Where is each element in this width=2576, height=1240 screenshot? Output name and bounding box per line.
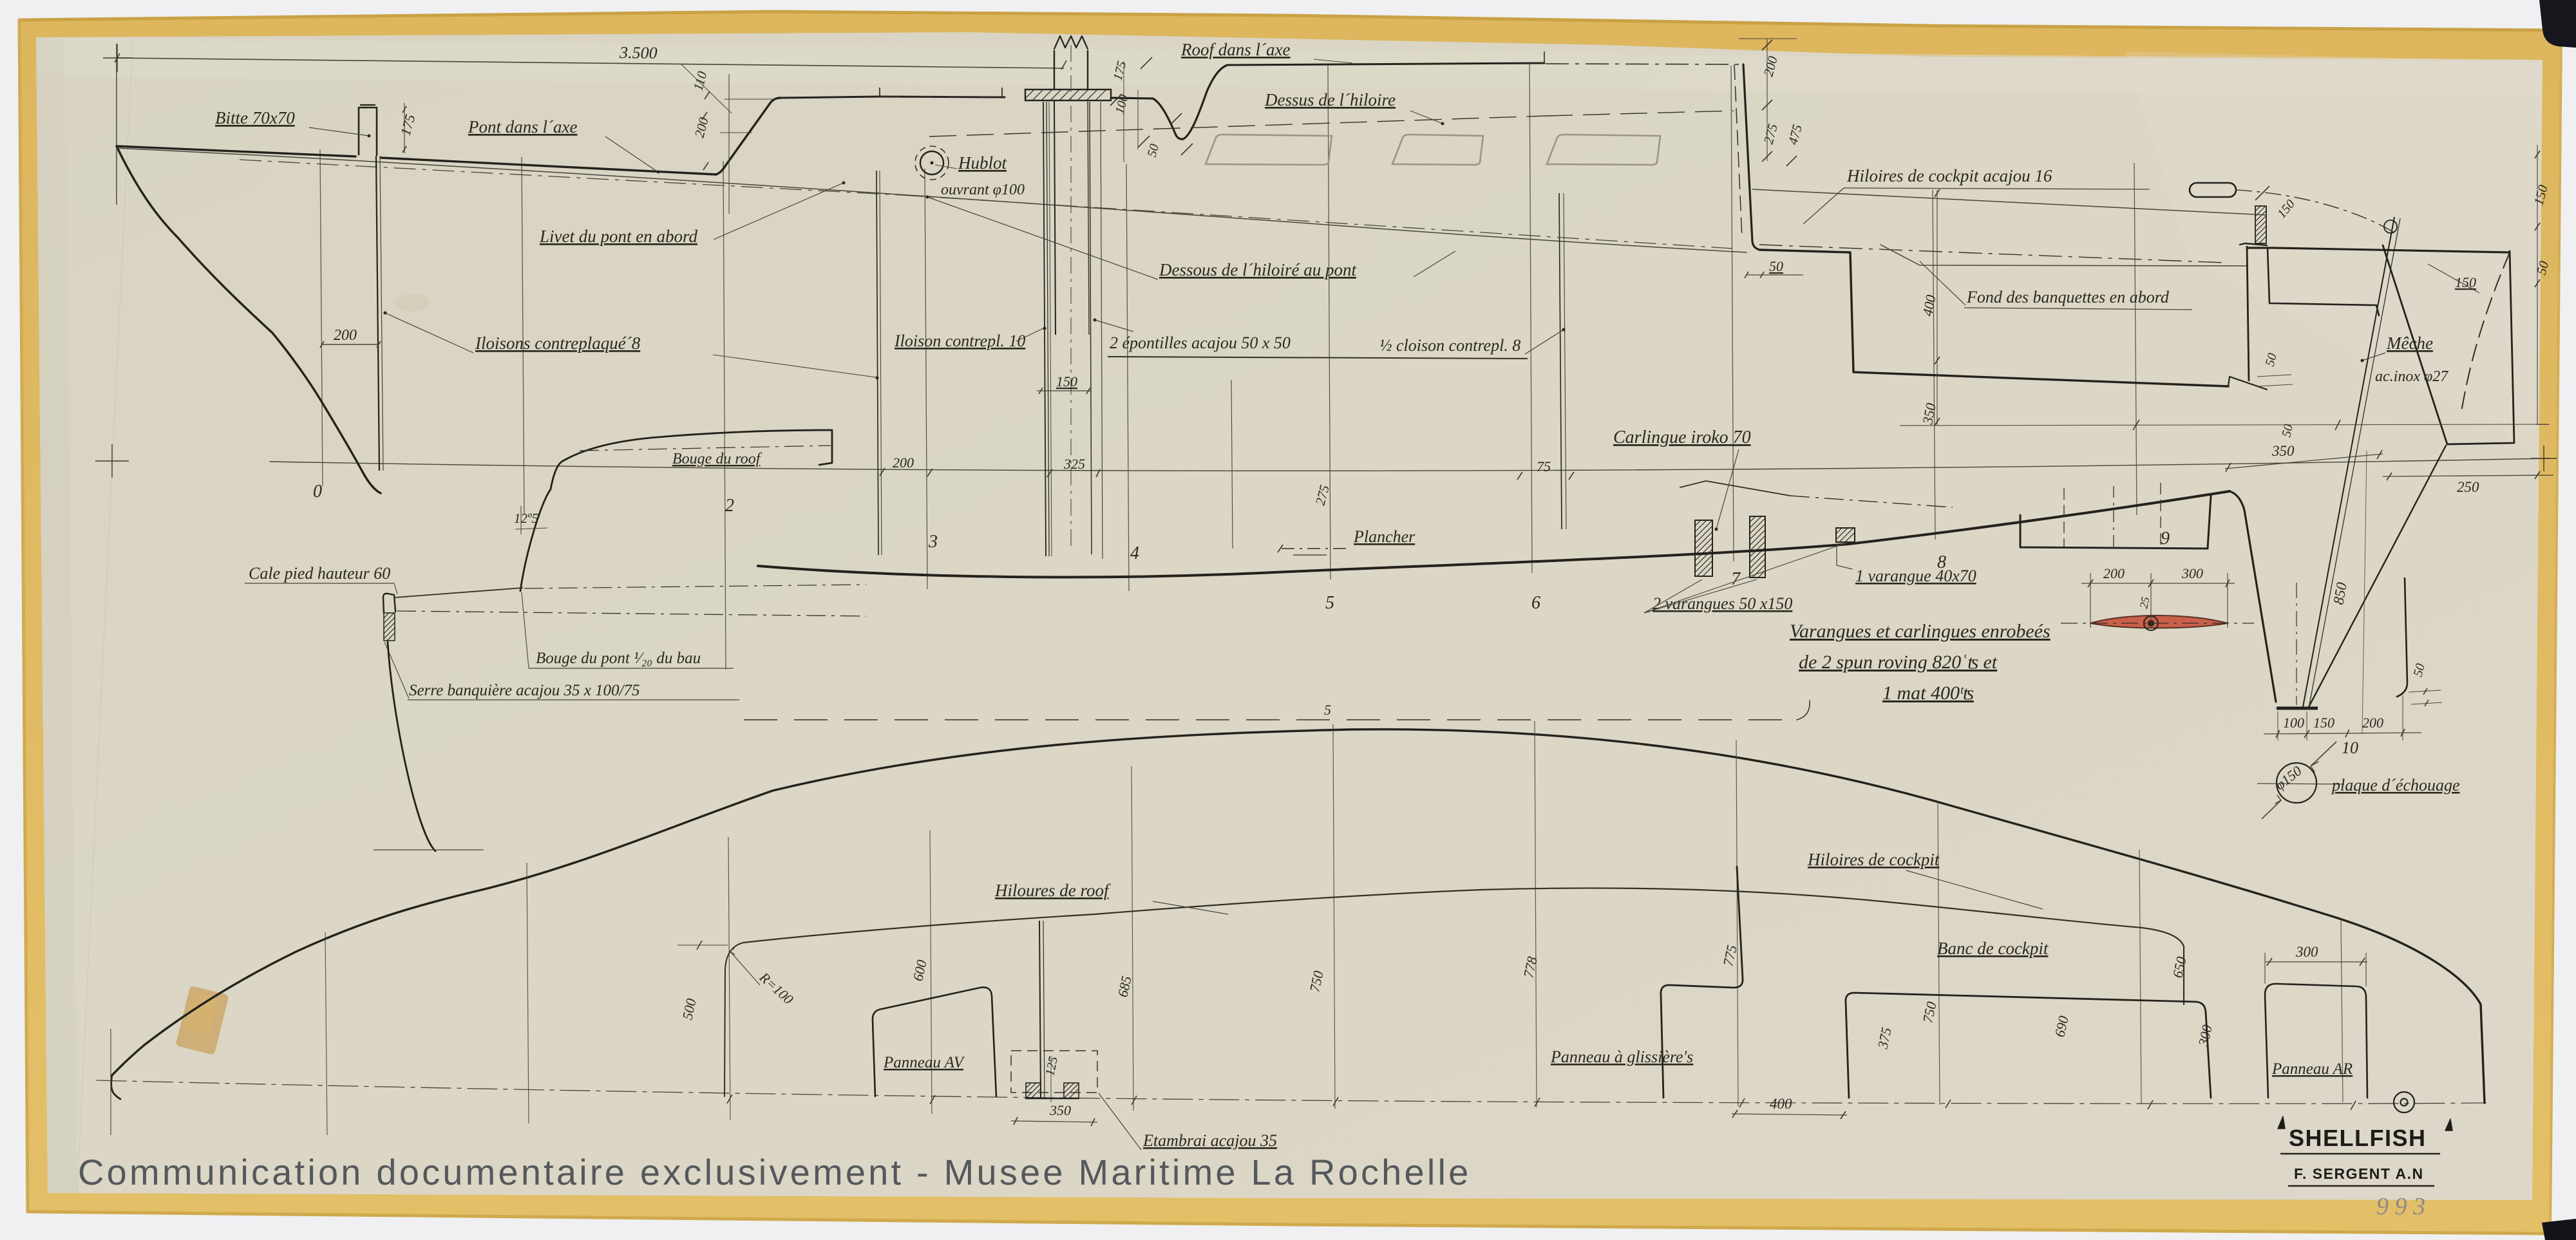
svg-text:Communication documentaire exc: Communication documentaire exclusivement… — [78, 1152, 1471, 1192]
svg-text:Dessous de l´hiloiré au pont: Dessous de l´hiloiré au pont — [1159, 260, 1357, 279]
svg-text:2 épontilles acajou 50 x 50: 2 épontilles acajou 50 x 50 — [1110, 333, 1291, 352]
svg-text:Iloison contrepl. 10: Iloison contrepl. 10 — [894, 332, 1025, 350]
svg-text:7: 7 — [1731, 569, 1741, 589]
svg-text:75: 75 — [1537, 458, 1551, 474]
svg-text:ac.inox φ27: ac.inox φ27 — [2375, 368, 2448, 385]
svg-text:Plancher: Plancher — [1353, 527, 1416, 546]
svg-text:Bouge du pont ¹⁄₂₀ du bau: Bouge du pont ¹⁄₂₀ du bau — [536, 650, 701, 667]
svg-text:150: 150 — [2455, 274, 2476, 290]
svg-text:300: 300 — [2295, 944, 2318, 960]
svg-text:Bouge du roof: Bouge du roof — [672, 451, 762, 467]
svg-text:Cale pied hauteur 60: Cale pied hauteur 60 — [249, 564, 390, 583]
svg-text:350: 350 — [2271, 443, 2295, 459]
svg-text:250: 250 — [2457, 479, 2479, 495]
svg-text:Hiloires de cockpit: Hiloires de cockpit — [1807, 850, 1940, 869]
svg-text:Dessus de l´hiloire: Dessus de l´hiloire — [1264, 90, 1396, 109]
svg-text:Hublot: Hublot — [958, 153, 1008, 173]
svg-text:Livet du pont en abord: Livet du pont en abord — [539, 227, 697, 246]
svg-text:Pont dans l´axe: Pont dans l´axe — [468, 117, 577, 136]
svg-text:150: 150 — [1056, 373, 1077, 390]
svg-text:350: 350 — [1049, 1102, 1071, 1118]
svg-text:Roof dans l´axe: Roof dans l´axe — [1180, 40, 1290, 59]
svg-text:1 mat 400ᵗʦ: 1 mat 400ᵗʦ — [1882, 682, 1974, 704]
svg-text:12º5: 12º5 — [514, 511, 538, 526]
svg-text:400: 400 — [1770, 1096, 1792, 1112]
svg-text:Panneau AR: Panneau AR — [2271, 1060, 2353, 1078]
svg-text:1 varangue 40x70: 1 varangue 40x70 — [1855, 567, 1976, 585]
svg-text:9 9 3: 9 9 3 — [2376, 1193, 2425, 1220]
svg-text:plaque d´échouage: plaque d´échouage — [2331, 776, 2460, 794]
svg-text:2: 2 — [725, 496, 734, 516]
svg-text:50: 50 — [1769, 258, 1783, 274]
svg-text:F. SERGENT A.N: F. SERGENT A.N — [2294, 1165, 2424, 1182]
svg-text:Mêche: Mêche — [2386, 333, 2433, 353]
svg-text:Banc de cockpit: Banc de cockpit — [1937, 939, 2049, 958]
svg-text:5: 5 — [1325, 593, 1334, 613]
svg-text:SHELLFISH: SHELLFISH — [2289, 1125, 2427, 1151]
svg-text:200: 200 — [334, 327, 357, 344]
svg-text:200: 200 — [2362, 715, 2383, 731]
svg-text:½ cloison contrepl. 8: ½ cloison contrepl. 8 — [1379, 336, 1520, 355]
svg-text:Panneau AV: Panneau AV — [883, 1054, 965, 1071]
svg-text:Panneau à glissière's: Panneau à glissière's — [1550, 1047, 1693, 1066]
svg-text:6: 6 — [1531, 593, 1540, 613]
svg-text:Bitte 70x70: Bitte 70x70 — [215, 108, 295, 127]
svg-text:3: 3 — [928, 532, 938, 552]
svg-text:300: 300 — [2181, 565, 2203, 581]
svg-text:Iloisons contreplaqué´8: Iloisons contreplaqué´8 — [475, 333, 641, 353]
svg-text:Fond des banquettes en abord: Fond des banquettes en abord — [1966, 288, 2170, 306]
svg-text:Hiloures de roof: Hiloures de roof — [994, 881, 1111, 900]
svg-text:150: 150 — [2313, 715, 2334, 731]
svg-text:Carlingue iroko 70: Carlingue iroko 70 — [1613, 427, 1751, 447]
svg-text:4: 4 — [1130, 543, 1139, 563]
svg-text:Varangues et carlingues enrobe: Varangues et carlingues enrobeés — [1790, 621, 2050, 642]
svg-text:ouvrant φ100: ouvrant φ100 — [941, 182, 1025, 198]
svg-text:0: 0 — [313, 482, 322, 502]
svg-text:200: 200 — [893, 455, 914, 471]
svg-text:9: 9 — [2161, 529, 2170, 549]
svg-text:Serre banquière acajou 35 x 10: Serre banquière acajou 35 x 100/75 — [409, 682, 640, 699]
svg-text:325: 325 — [1063, 456, 1085, 472]
svg-text:200: 200 — [2103, 565, 2125, 581]
svg-text:10: 10 — [2342, 738, 2358, 757]
svg-text:3.500: 3.500 — [619, 43, 658, 62]
svg-text:Hiloires de cockpit acajou 16: Hiloires de cockpit acajou 16 — [1846, 166, 2052, 185]
svg-text:100: 100 — [2283, 715, 2304, 731]
svg-text:Etambrai acajou 35: Etambrai acajou 35 — [1142, 1131, 1277, 1150]
svg-text:5: 5 — [1324, 702, 1331, 718]
svg-text:2 varangues 50 x150: 2 varangues 50 x150 — [1653, 594, 1792, 613]
svg-text:de 2 spun roving 820ʿʦ et: de 2 spun roving 820ʿʦ et — [1799, 652, 1998, 673]
